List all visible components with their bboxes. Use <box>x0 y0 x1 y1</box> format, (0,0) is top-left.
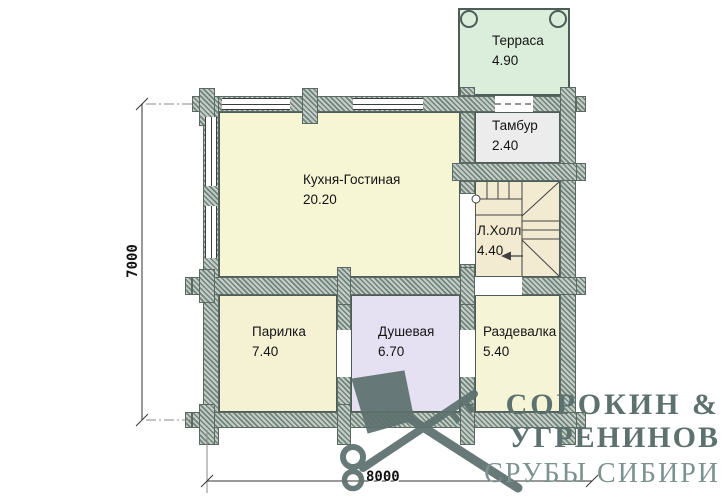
room-area: 7.40 <box>252 344 278 359</box>
room-area: 6.70 <box>378 344 404 359</box>
terrace-post-right-icon <box>549 10 567 28</box>
logo-tagline: СРУБЫ СИБИРИ <box>484 458 720 490</box>
logo-name-line1: СОРОКИН & <box>506 388 720 422</box>
log-crossing <box>199 269 215 303</box>
door-steam-shower <box>337 330 351 377</box>
room-area: 4.40 <box>477 243 503 258</box>
terrace-post-left-icon <box>460 10 478 28</box>
label-steam: Парилка 7.40 <box>252 322 306 361</box>
room-name: Л.Холл <box>477 223 521 238</box>
door-hall-dressing <box>475 277 522 295</box>
log-crossing <box>460 267 475 305</box>
log-crossing <box>337 267 351 305</box>
label-dressing: Раздевалка 5.40 <box>483 322 556 361</box>
room-name: Кухня-Гостиная <box>303 172 400 187</box>
room-name: Парилка <box>252 324 306 339</box>
label-stair-hall: Л.Холл 4.40 <box>477 221 521 260</box>
label-shower: Душевая 6.70 <box>378 322 434 361</box>
centerlines <box>146 104 207 493</box>
log-crossing <box>337 404 351 445</box>
wall-tambour-left <box>460 112 475 163</box>
label-terrace: Терраса 4.90 <box>492 31 544 70</box>
log-crossing <box>576 163 586 181</box>
wall-tambour-bottom <box>452 163 586 181</box>
log-crossing <box>185 412 192 428</box>
window-top-2 <box>353 98 423 110</box>
log-crossing <box>302 88 318 124</box>
window-top-1 <box>222 98 290 110</box>
room-name: Душевая <box>378 324 434 339</box>
room-name: Терраса <box>492 33 544 48</box>
door-shower-dressing <box>460 330 475 377</box>
window-left-1 <box>205 117 217 186</box>
room-area: 4.90 <box>492 53 518 68</box>
room-name: Раздевалка <box>483 324 556 339</box>
floor-plan-canvas: Терраса 4.90 Тамбур 2.40 Кухня-Гостиная … <box>0 0 728 502</box>
room-area: 2.40 <box>492 138 518 153</box>
dimension-horizontal-8000: 8000 <box>366 469 400 485</box>
label-tambour: Тамбур 2.40 <box>492 116 538 155</box>
dimension-vertical-7000: 7000 <box>125 231 141 291</box>
log-crossing <box>460 404 475 445</box>
label-kitchen-living: Кухня-Гостиная 20.20 <box>303 170 400 209</box>
log-crossing <box>576 277 586 295</box>
door-terrace-tambour <box>495 96 533 112</box>
window-left-2 <box>205 206 217 258</box>
wall-middle <box>192 277 583 295</box>
room-name: Тамбур <box>492 118 538 133</box>
log-crossing <box>185 277 192 295</box>
opening-kitchen-hall <box>460 194 475 264</box>
log-crossing <box>199 404 215 445</box>
log-crossing <box>460 87 475 96</box>
room-area: 5.40 <box>483 344 509 359</box>
room-area: 20.20 <box>303 192 337 207</box>
wall-hall-stub-top <box>460 181 475 194</box>
logo-name-line2: УГРЕНИНОВ <box>509 421 720 455</box>
log-crossing <box>576 96 586 112</box>
